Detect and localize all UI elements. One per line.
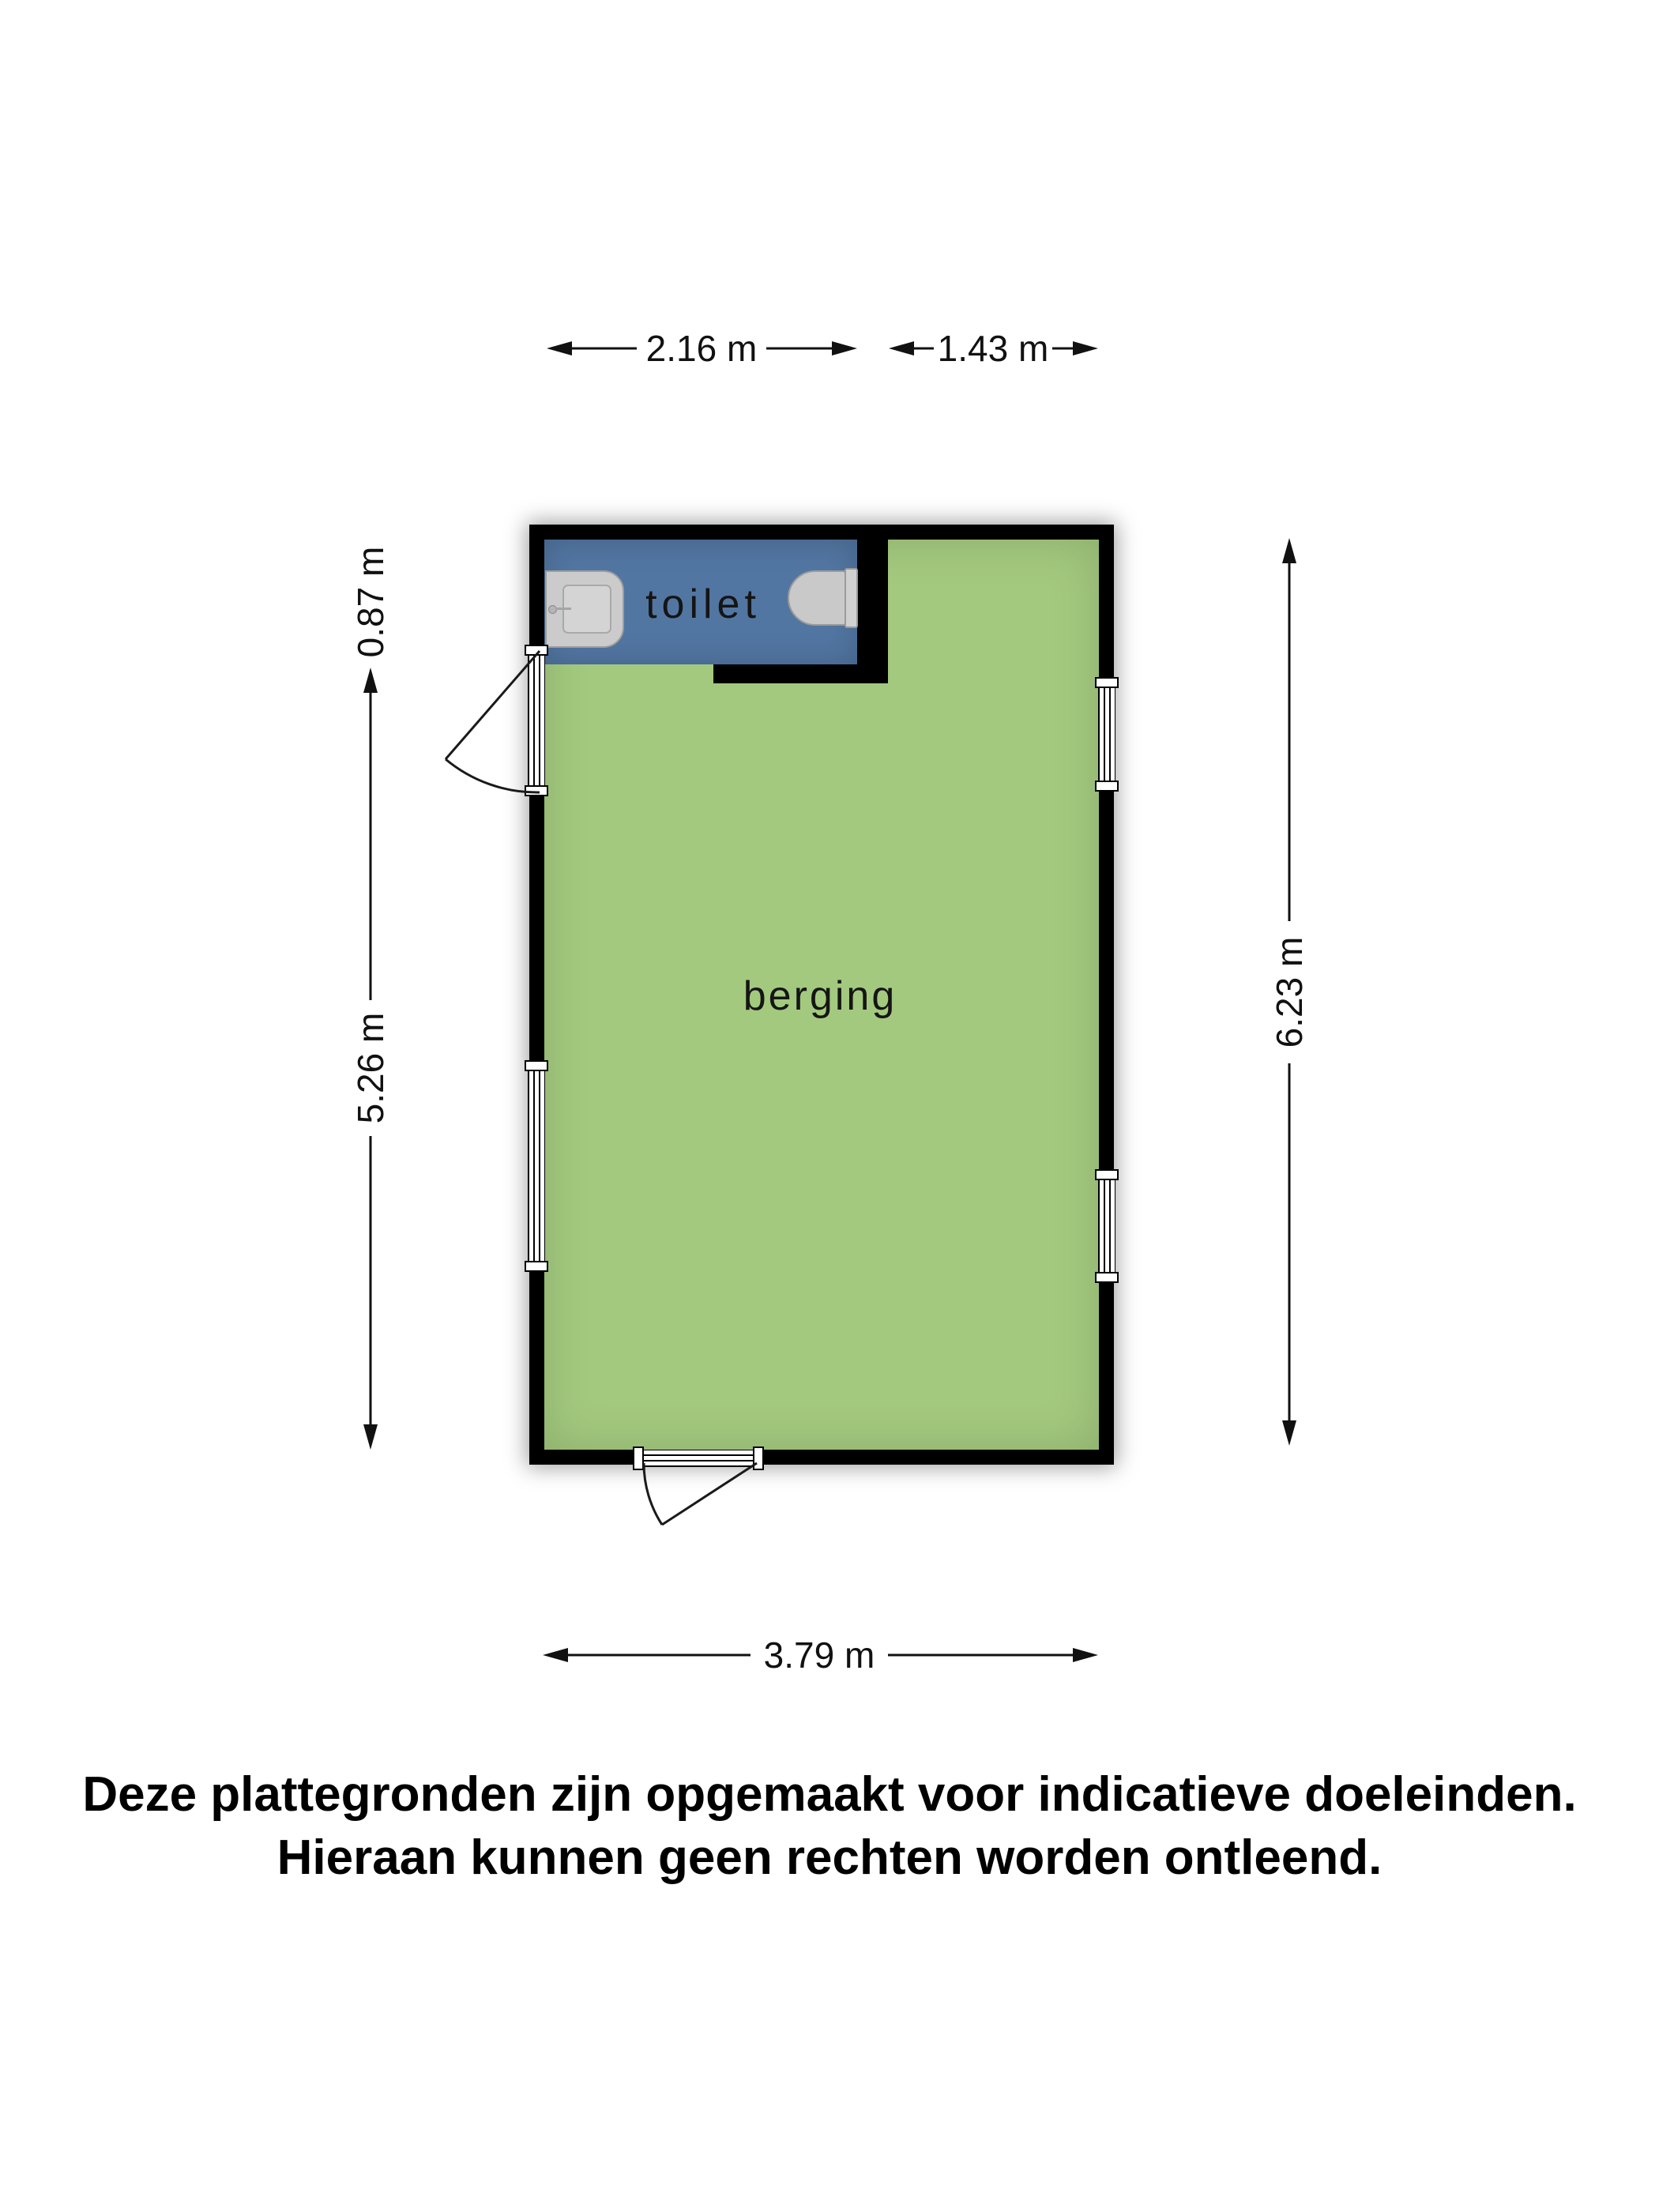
bottom-door-arc — [644, 1463, 662, 1525]
disclaimer-line-2: Hieraan kunnen geen rechten worden ontle… — [0, 1826, 1659, 1890]
left-door-leaf-line — [446, 651, 540, 759]
toilet-partition-wall-horizontal — [713, 664, 888, 683]
left-window-cap-top — [525, 1060, 548, 1071]
bottom-door-leaf-line — [662, 1463, 757, 1525]
arrowhead-379-left — [543, 1648, 568, 1662]
disclaimer: Deze plattegronden zijn opgemaakt voor i… — [0, 1763, 1659, 1890]
dim-label-top-right: 1.43 m — [938, 327, 1049, 370]
right-upper-window-cap-bottom — [1095, 781, 1119, 792]
dim-label-top-left: 2.16 m — [646, 327, 758, 370]
arrowhead-623-down — [1282, 1420, 1296, 1446]
left-door-leaf — [528, 656, 545, 785]
arrowhead-623-up — [1282, 538, 1296, 563]
floor-plan-page: toilet berging 2.16 m 1.43 m 0.87 m 5.26… — [0, 0, 1659, 2212]
left-window — [528, 1071, 545, 1261]
arrowhead-216-left — [547, 341, 572, 355]
toilet-partition-wall-vertical — [857, 540, 888, 683]
room-label-toilet: toilet — [645, 581, 761, 628]
right-lower-window-cap-bottom — [1095, 1272, 1119, 1283]
bottom-door-jamb-left — [633, 1446, 644, 1470]
dim-label-bottom: 3.79 m — [764, 1634, 875, 1676]
arrowhead-526-up — [363, 668, 378, 693]
toilet-tank-icon — [845, 568, 858, 628]
room-label-berging: berging — [743, 972, 897, 1020]
left-door-jamb-bottom — [525, 785, 548, 796]
arrowhead-379-right — [1073, 1648, 1098, 1662]
disclaimer-line-1: Deze plattegronden zijn opgemaakt voor i… — [0, 1763, 1659, 1826]
arrowhead-216-right — [832, 341, 857, 355]
arrowhead-143-right — [1073, 341, 1098, 355]
left-door-jamb-top — [525, 645, 548, 656]
dim-label-right: 6.23 m — [1268, 937, 1311, 1048]
right-lower-window-cap-top — [1095, 1169, 1119, 1180]
sink-faucet-line — [555, 608, 571, 610]
bottom-door-leaf — [644, 1450, 753, 1467]
dim-label-left-bottom: 5.26 m — [349, 1013, 392, 1124]
arrowhead-526-down — [363, 1424, 378, 1450]
toilet-bowl-icon — [788, 570, 848, 626]
dim-label-left-top: 0.87 m — [349, 547, 392, 658]
right-upper-window-cap-top — [1095, 677, 1119, 688]
right-lower-window — [1098, 1180, 1115, 1272]
arrowhead-143-left — [889, 341, 914, 355]
left-window-cap-bottom — [525, 1261, 548, 1272]
bottom-door-jamb-right — [753, 1446, 764, 1470]
right-upper-window — [1098, 688, 1115, 781]
